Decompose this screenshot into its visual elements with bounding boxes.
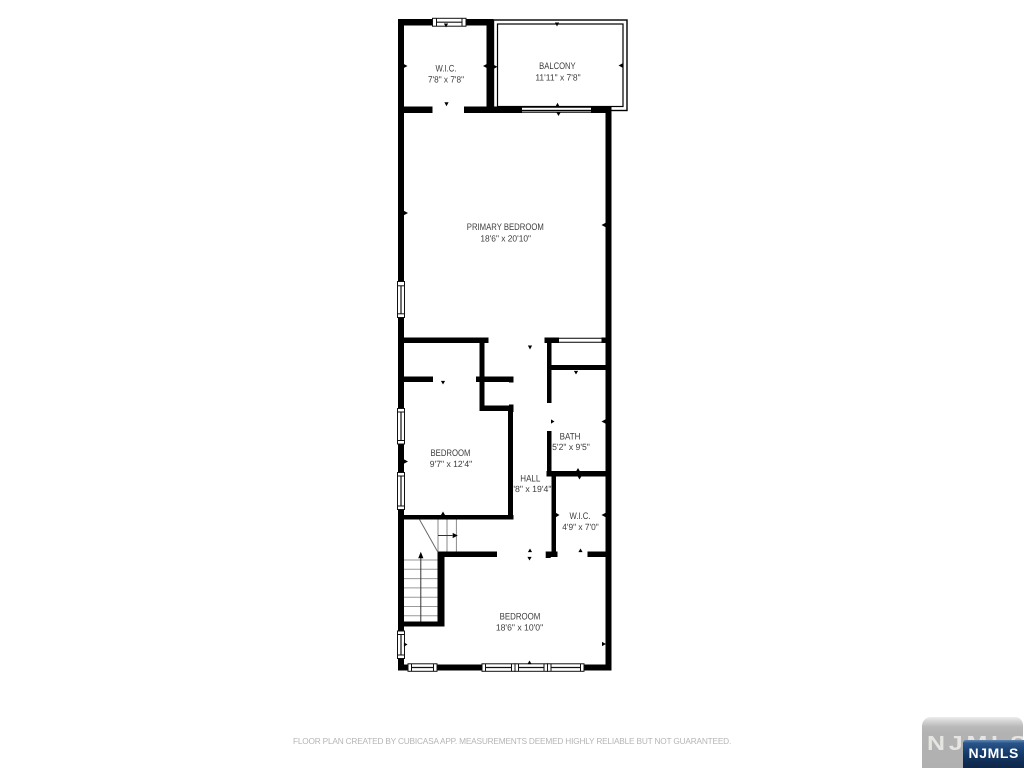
svg-text:PRIMARY BEDROOM: PRIMARY BEDROOM <box>467 222 544 233</box>
svg-text:W.I.C.: W.I.C. <box>570 511 591 522</box>
svg-text:7'8" x 7'8": 7'8" x 7'8" <box>428 75 464 85</box>
svg-text:BEDROOM: BEDROOM <box>500 612 541 623</box>
svg-text:18'6" x 10'0": 18'6" x 10'0" <box>496 623 543 633</box>
svg-text:W.I.C.: W.I.C. <box>436 64 457 75</box>
svg-text:4'8" x 19'4": 4'8" x 19'4" <box>509 484 552 494</box>
svg-text:HALL: HALL <box>520 474 540 485</box>
svg-text:4'9" x 7'0": 4'9" x 7'0" <box>562 522 599 532</box>
svg-text:5'2" x 9'5": 5'2" x 9'5" <box>552 442 590 452</box>
svg-text:BEDROOM: BEDROOM <box>431 448 471 459</box>
svg-text:BALCONY: BALCONY <box>539 61 576 72</box>
svg-text:BATH: BATH <box>560 432 581 443</box>
svg-text:11'11" x 7'8": 11'11" x 7'8" <box>535 73 580 83</box>
svg-text:18'6" x 20'10": 18'6" x 20'10" <box>480 234 531 244</box>
svg-text:9'7" x 12'4": 9'7" x 12'4" <box>430 459 472 469</box>
